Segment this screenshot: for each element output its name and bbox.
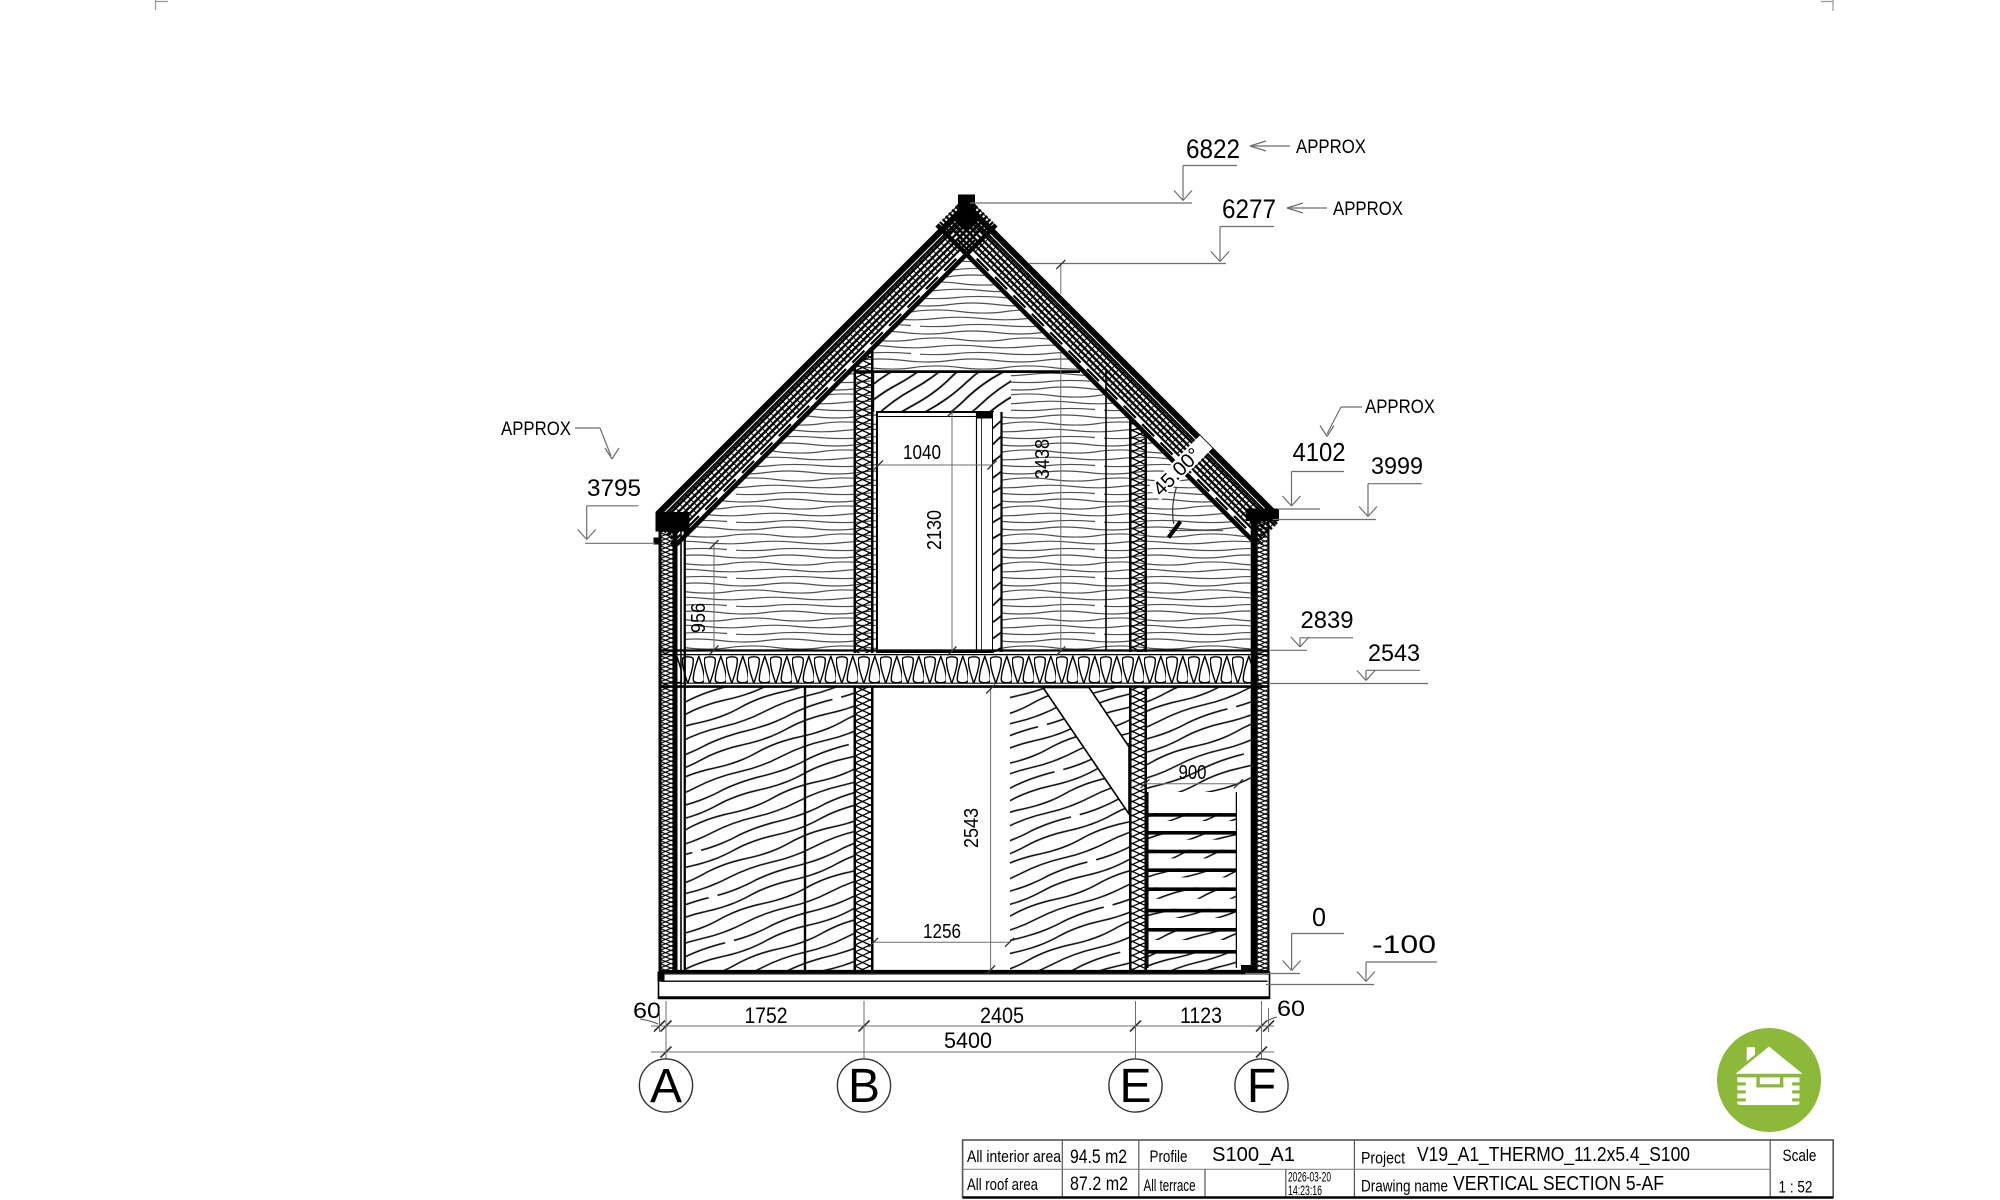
svg-text:900: 900	[1179, 762, 1207, 784]
svg-text:956: 956	[688, 603, 710, 633]
svg-text:3438: 3438	[1032, 439, 1054, 479]
svg-text:APPROX: APPROX	[1296, 137, 1366, 158]
svg-text:5400: 5400	[944, 1028, 992, 1053]
svg-text:2543: 2543	[1368, 640, 1420, 667]
svg-text:All interior area: All interior area	[967, 1148, 1062, 1166]
svg-text:APPROX: APPROX	[1365, 397, 1435, 418]
svg-text:A: A	[650, 1060, 682, 1113]
svg-text:Project: Project	[1361, 1150, 1405, 1168]
svg-text:1256: 1256	[923, 920, 961, 943]
svg-text:2405: 2405	[980, 1003, 1024, 1028]
svg-text:6822: 6822	[1186, 134, 1240, 164]
svg-text:S100_A1: S100_A1	[1212, 1143, 1295, 1166]
svg-text:1040: 1040	[903, 442, 941, 464]
svg-text:4102: 4102	[1293, 437, 1346, 467]
svg-text:All terrace: All terrace	[1144, 1177, 1196, 1195]
svg-text:3999: 3999	[1371, 453, 1423, 480]
svg-text:Scale: Scale	[1783, 1147, 1817, 1165]
svg-text:V19_A1_THERMO_11.2x5.4_S100: V19_A1_THERMO_11.2x5.4_S100	[1417, 1143, 1690, 1166]
svg-text:-100: -100	[1372, 931, 1436, 959]
svg-text:F: F	[1247, 1060, 1276, 1113]
svg-text:All roof area: All roof area	[967, 1176, 1039, 1194]
svg-text:14:23:16: 14:23:16	[1288, 1183, 1322, 1198]
svg-text:2130: 2130	[924, 510, 946, 550]
svg-text:94.5 m2: 94.5 m2	[1070, 1147, 1127, 1168]
svg-text:1123: 1123	[1180, 1003, 1222, 1028]
svg-text:2839: 2839	[1301, 607, 1354, 634]
svg-text:1 : 52: 1 : 52	[1779, 1179, 1813, 1197]
svg-text:60: 60	[633, 998, 661, 1023]
svg-text:2543: 2543	[961, 808, 983, 848]
svg-text:1752: 1752	[745, 1003, 788, 1028]
svg-text:VERTICAL SECTION 5-AF: VERTICAL SECTION 5-AF	[1453, 1172, 1664, 1195]
svg-text:3795: 3795	[587, 475, 641, 502]
svg-text:APPROX: APPROX	[501, 419, 571, 440]
svg-text:0: 0	[1312, 902, 1326, 932]
svg-text:87.2 m2: 87.2 m2	[1070, 1174, 1128, 1195]
svg-text:Drawing name: Drawing name	[1361, 1178, 1448, 1196]
svg-text:6277: 6277	[1222, 194, 1276, 224]
svg-text:E: E	[1119, 1060, 1151, 1113]
svg-text:APPROX: APPROX	[1333, 199, 1403, 220]
svg-text:60: 60	[1277, 996, 1305, 1021]
svg-text:Profile: Profile	[1150, 1148, 1188, 1166]
svg-text:B: B	[848, 1060, 880, 1113]
